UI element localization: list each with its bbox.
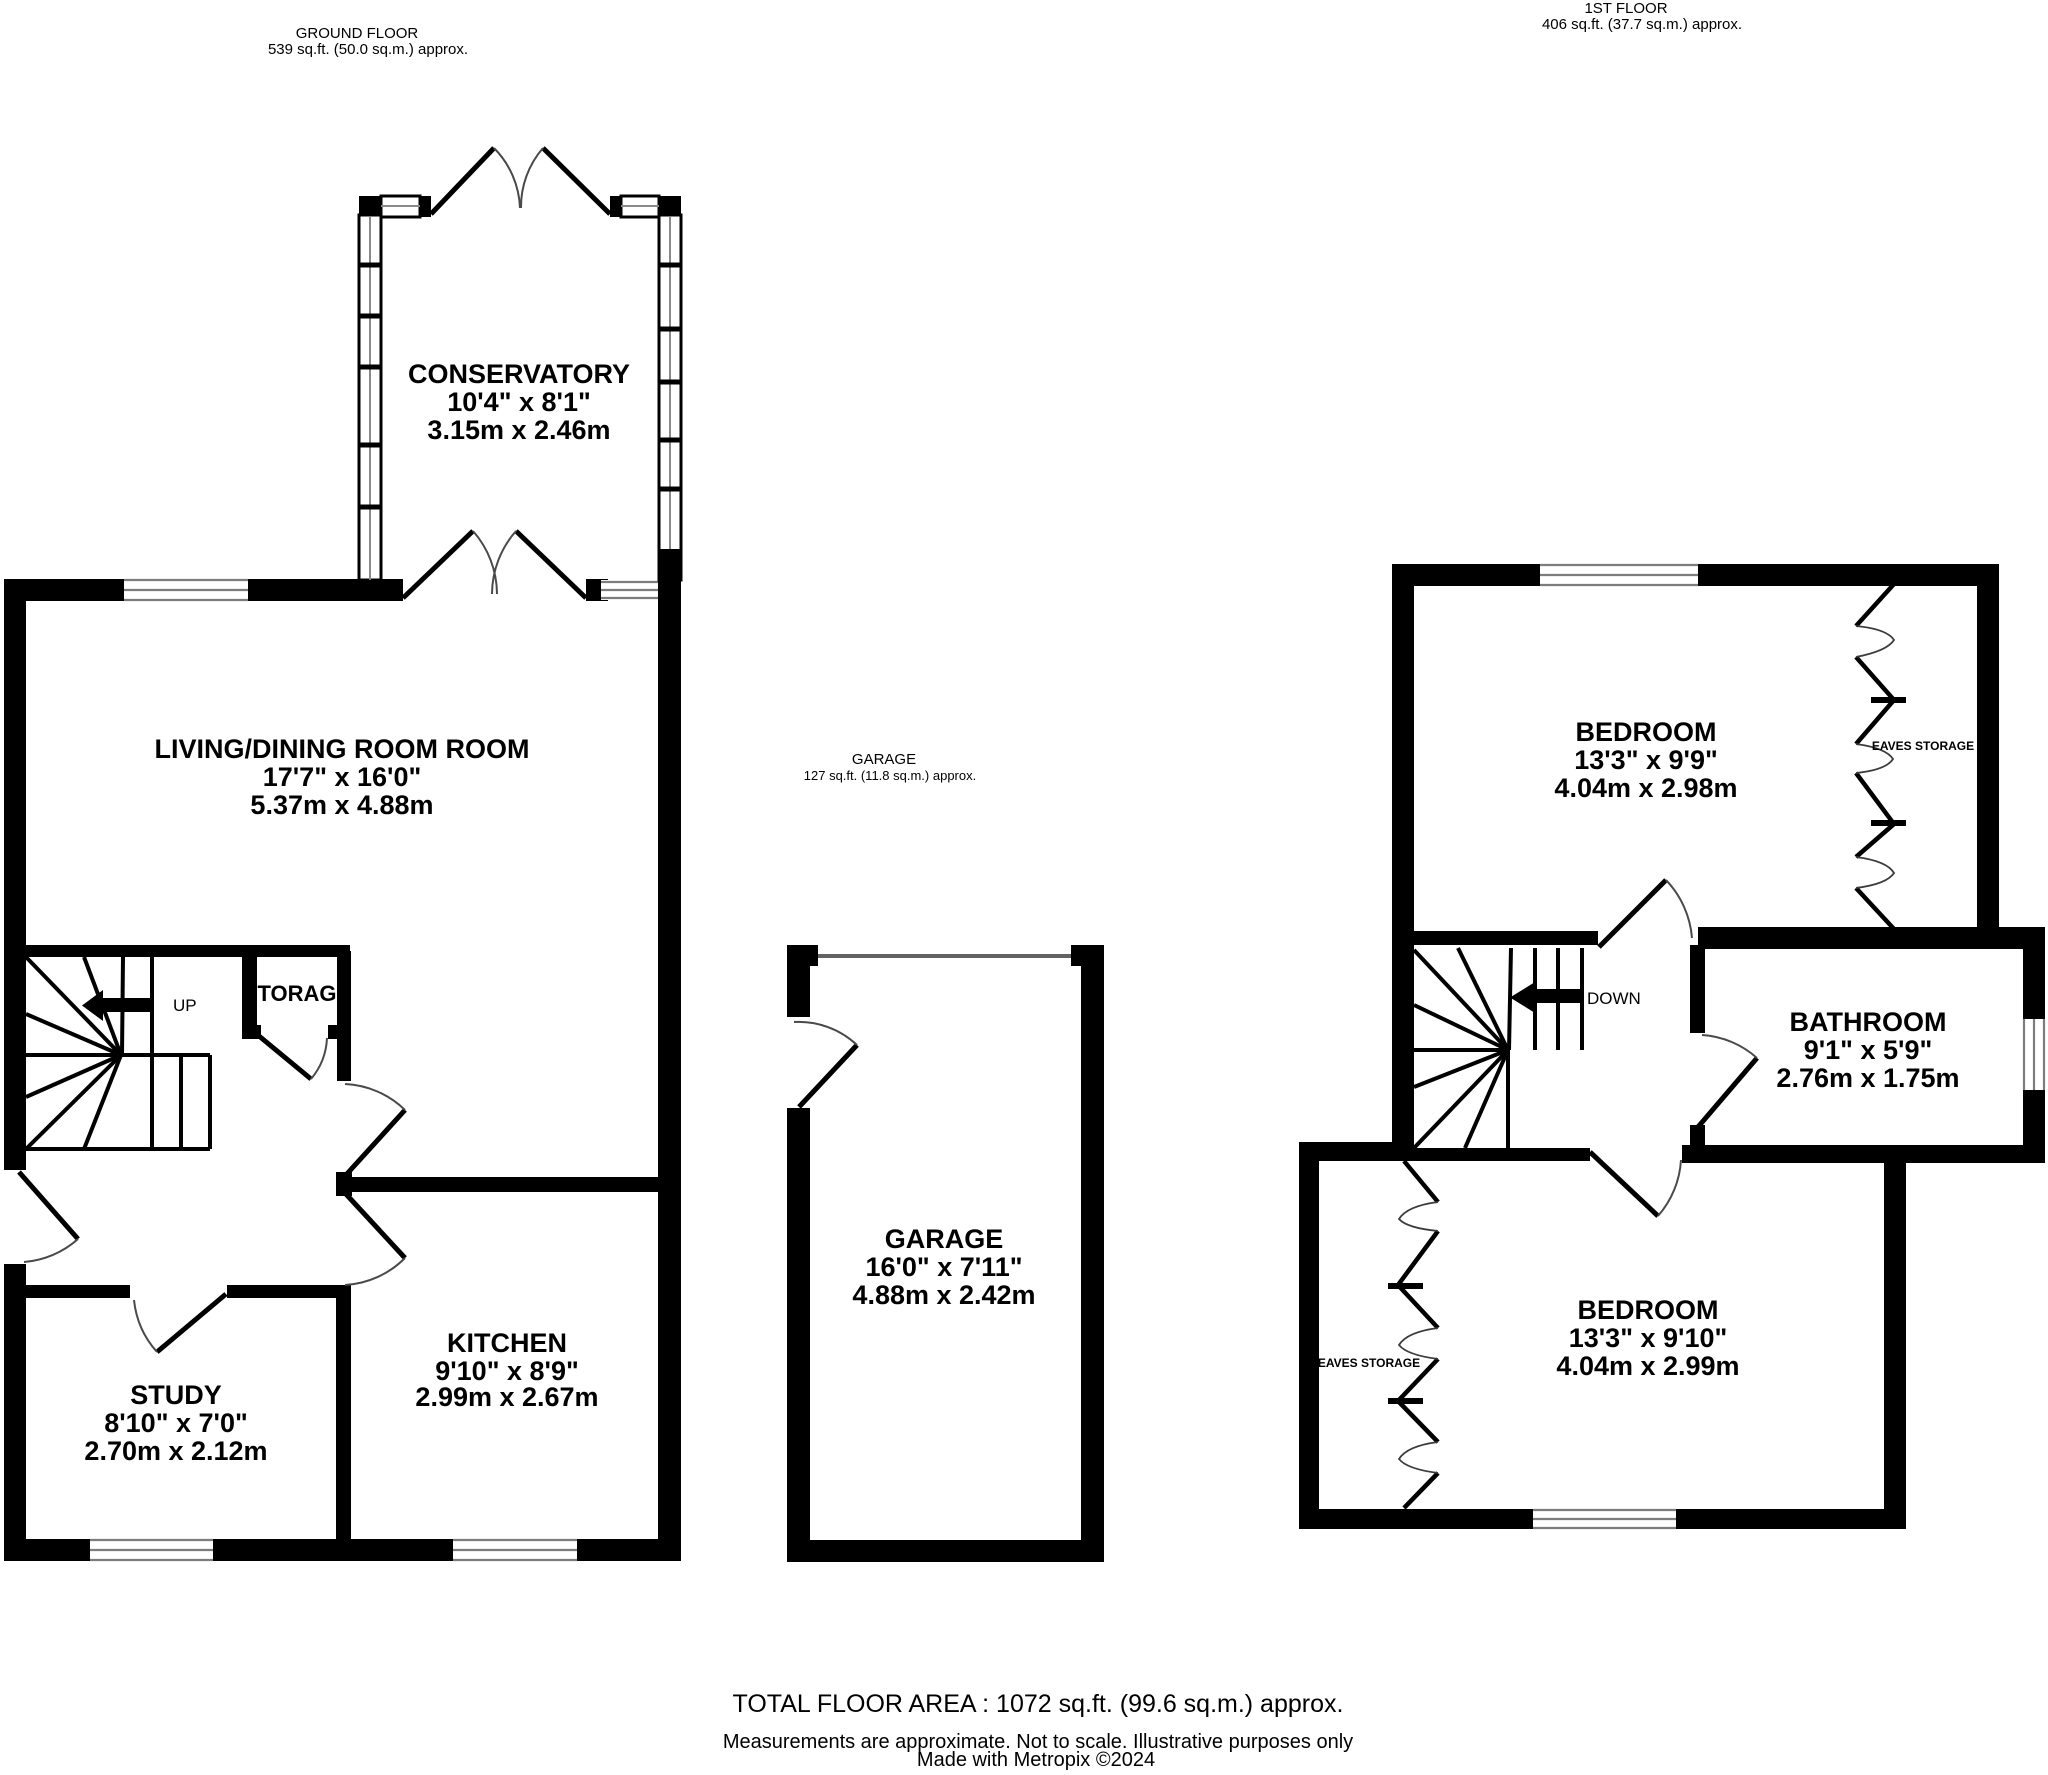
svg-text:2.76m x 1.75m: 2.76m x 1.75m [1776,1063,1959,1093]
svg-text:10'4" x 8'1": 10'4" x 8'1" [447,387,591,417]
svg-text:TOTAL FLOOR AREA : 1072 sq.ft.: TOTAL FLOOR AREA : 1072 sq.ft. (99.6 sq.… [733,1690,1344,1718]
svg-text:STORAGE: STORAGE [243,981,351,1006]
svg-text:STUDY: STUDY [130,1380,222,1410]
svg-text:4.04m x 2.99m: 4.04m x 2.99m [1556,1351,1739,1381]
svg-text:UP: UP [173,996,197,1015]
svg-text:2.99m x 2.67m: 2.99m x 2.67m [415,1382,598,1412]
svg-text:EAVES STORAGE: EAVES STORAGE [1318,1356,1420,1370]
svg-text:DOWN: DOWN [1587,989,1641,1008]
svg-text:GARAGE: GARAGE [852,751,916,768]
svg-text:5.37m x 4.88m: 5.37m x 4.88m [250,790,433,820]
svg-text:1ST FLOOR: 1ST FLOOR [1584,0,1667,17]
svg-text:BEDROOM: BEDROOM [1576,717,1717,747]
svg-text:17'7" x 16'0": 17'7" x 16'0" [263,762,422,792]
svg-text:8'10" x 7'0": 8'10" x 7'0" [104,1408,248,1438]
svg-text:CONSERVATORY: CONSERVATORY [408,359,630,389]
svg-text:2.70m x 2.12m: 2.70m x 2.12m [84,1436,267,1466]
svg-text:BEDROOM: BEDROOM [1578,1295,1719,1325]
svg-text:GARAGE: GARAGE [885,1224,1004,1254]
svg-text:GROUND FLOOR: GROUND FLOOR [296,25,419,42]
svg-text:13'3" x 9'10": 13'3" x 9'10" [1569,1323,1728,1353]
svg-text:16'0" x 7'11": 16'0" x 7'11" [865,1252,1022,1282]
svg-text:4.04m x 2.98m: 4.04m x 2.98m [1554,773,1737,803]
svg-text:BATHROOM: BATHROOM [1790,1007,1947,1037]
svg-text:127 sq.ft. (11.8 sq.m.) approx: 127 sq.ft. (11.8 sq.m.) approx. [804,768,976,783]
svg-text:Made with Metropix ©2024: Made with Metropix ©2024 [917,1749,1155,1771]
svg-text:4.88m x 2.42m: 4.88m x 2.42m [852,1280,1035,1310]
svg-text:EAVES STORAGE: EAVES STORAGE [1872,739,1974,753]
svg-text:3.15m x 2.46m: 3.15m x 2.46m [427,415,610,445]
svg-text:KITCHEN: KITCHEN [447,1328,567,1358]
svg-text:406 sq.ft. (37.7 sq.m.) approx: 406 sq.ft. (37.7 sq.m.) approx. [1542,16,1742,33]
svg-text:9'1" x 5'9": 9'1" x 5'9" [1804,1035,1933,1065]
svg-text:539 sq.ft. (50.0 sq.m.) approx: 539 sq.ft. (50.0 sq.m.) approx. [268,41,468,58]
svg-text:13'3" x 9'9": 13'3" x 9'9" [1574,745,1718,775]
svg-text:LIVING/DINING ROOM ROOM: LIVING/DINING ROOM ROOM [155,734,530,764]
